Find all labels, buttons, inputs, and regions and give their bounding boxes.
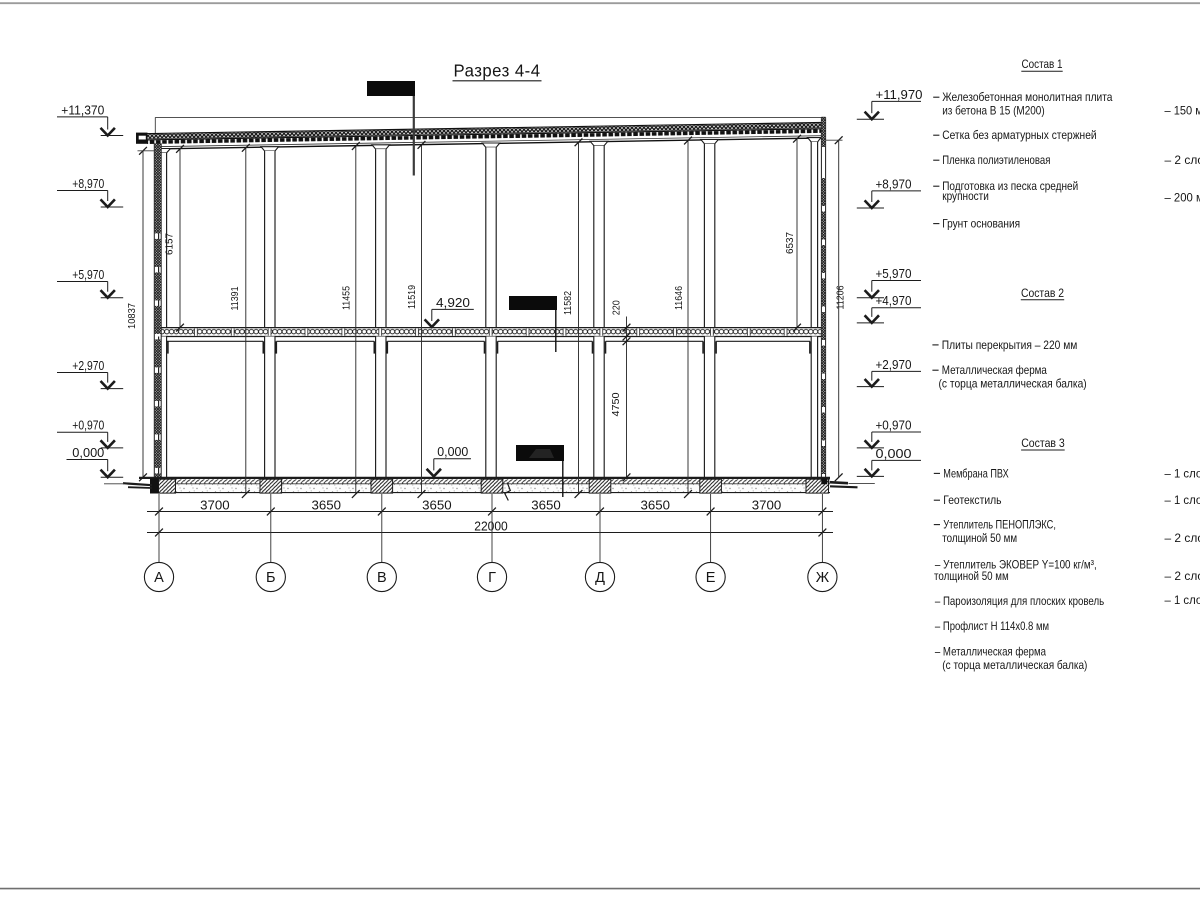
- svg-text:3700: 3700: [752, 498, 782, 513]
- svg-text:– 200 мм: – 200 мм: [1165, 191, 1200, 205]
- svg-text:А: А: [154, 570, 164, 586]
- svg-text:+4,970: +4,970: [876, 293, 912, 308]
- svg-text:0,000: 0,000: [437, 444, 468, 459]
- svg-text:+8,970: +8,970: [876, 176, 912, 191]
- svg-text:– Металлическая ферма: – Металлическая ферма: [935, 645, 1046, 659]
- svg-text:Плиты перекрытия – 220 мм: Плиты перекрытия – 220 мм: [942, 338, 1078, 352]
- svg-text:– 2 слоя: – 2 слоя: [1165, 153, 1200, 167]
- svg-text:220: 220: [610, 300, 622, 315]
- svg-text:Состав 1: Состав 1: [1022, 57, 1063, 71]
- svg-text:+11,370: +11,370: [61, 102, 104, 117]
- svg-text:Грунт основания: Грунт основания: [942, 217, 1020, 231]
- svg-text:Мембрана ПВХ: Мембрана ПВХ: [943, 466, 1008, 480]
- svg-text:толщиной 50 мм: толщиной 50 мм: [934, 569, 1009, 583]
- svg-text:11206: 11206: [835, 285, 847, 309]
- svg-text:– 2 слоя: – 2 слоя: [1165, 569, 1200, 583]
- svg-text:Ж: Ж: [816, 570, 830, 586]
- svg-text:+2,970: +2,970: [72, 358, 104, 373]
- svg-text:+0,970: +0,970: [72, 418, 104, 433]
- svg-text:3650: 3650: [312, 498, 342, 513]
- svg-text:0,000: 0,000: [72, 445, 104, 460]
- svg-text:Пленка полиэтиленовая: Пленка полиэтиленовая: [942, 153, 1050, 167]
- svg-text:11646: 11646: [673, 286, 685, 310]
- svg-text:11582: 11582: [562, 291, 574, 315]
- svg-text:Состав 3: Состав 3: [1021, 436, 1065, 450]
- svg-text:Д: Д: [595, 570, 605, 586]
- svg-text:3650: 3650: [531, 498, 561, 513]
- svg-text:толщиной 50 мм: толщиной 50 мм: [942, 531, 1017, 545]
- svg-text:3650: 3650: [422, 498, 452, 513]
- svg-text:6537: 6537: [784, 232, 796, 254]
- svg-text:4,920: 4,920: [436, 295, 470, 310]
- svg-text:Б: Б: [266, 570, 276, 586]
- svg-text:– 1 слой: – 1 слой: [1165, 593, 1200, 607]
- svg-text:+8,970: +8,970: [72, 176, 104, 191]
- svg-text:+5,970: +5,970: [72, 267, 104, 282]
- svg-text:Геотекстиль: Геотекстиль: [943, 493, 1001, 507]
- svg-text:В: В: [377, 570, 387, 586]
- svg-text:+0,970: +0,970: [876, 417, 912, 432]
- svg-text:Сетка без арматурных стержней: Сетка без арматурных стержней: [942, 128, 1096, 142]
- svg-text:10837: 10837: [126, 303, 138, 329]
- svg-text:4750: 4750: [610, 392, 622, 416]
- svg-text:22000: 22000: [474, 518, 508, 533]
- svg-text:Г: Г: [488, 570, 496, 586]
- svg-text:Утеплитель ПЕНОПЛЭКС,: Утеплитель ПЕНОПЛЭКС,: [943, 518, 1056, 532]
- svg-text:– Профлист Н 114х0.8 мм: – Профлист Н 114х0.8 мм: [935, 619, 1049, 633]
- svg-text:+5,970: +5,970: [876, 266, 912, 281]
- svg-text:Железобетонная монолитная пли: Железобетонная монолитная плита: [942, 90, 1113, 104]
- svg-text:(с торца металлическая балка): (с торца металлическая балка): [942, 658, 1087, 672]
- svg-text:(с торца металлическая балка): (с торца металлическая балка): [939, 377, 1087, 391]
- svg-text:3650: 3650: [641, 498, 671, 513]
- svg-text:крупности: крупности: [942, 189, 989, 203]
- svg-text:11391: 11391: [229, 286, 241, 310]
- svg-text:3700: 3700: [200, 498, 230, 513]
- svg-text:6157: 6157: [164, 233, 176, 255]
- svg-text:– 1 слой: – 1 слой: [1165, 466, 1200, 480]
- svg-text:– 1 слой: – 1 слой: [1165, 493, 1200, 507]
- svg-text:– Пароизоляция для плоских кро: – Пароизоляция для плоских кровель: [935, 594, 1104, 608]
- svg-text:+2,970: +2,970: [876, 357, 912, 372]
- svg-text:– 2 слоя: – 2 слоя: [1165, 531, 1200, 545]
- svg-text:11519: 11519: [406, 285, 418, 309]
- svg-text:Металлическая ферма: Металлическая ферма: [942, 363, 1047, 377]
- svg-text:Разрез 4-4: Разрез 4-4: [454, 61, 541, 81]
- svg-text:11455: 11455: [341, 286, 353, 310]
- svg-text:из бетона В 15 (М200): из бетона В 15 (М200): [942, 104, 1045, 118]
- svg-text:Е: Е: [706, 570, 716, 586]
- svg-text:Состав 2: Состав 2: [1021, 286, 1064, 300]
- svg-text:0,000: 0,000: [876, 446, 912, 461]
- svg-text:– 150 мм: – 150 мм: [1165, 104, 1200, 118]
- svg-text:+11,970: +11,970: [876, 87, 923, 102]
